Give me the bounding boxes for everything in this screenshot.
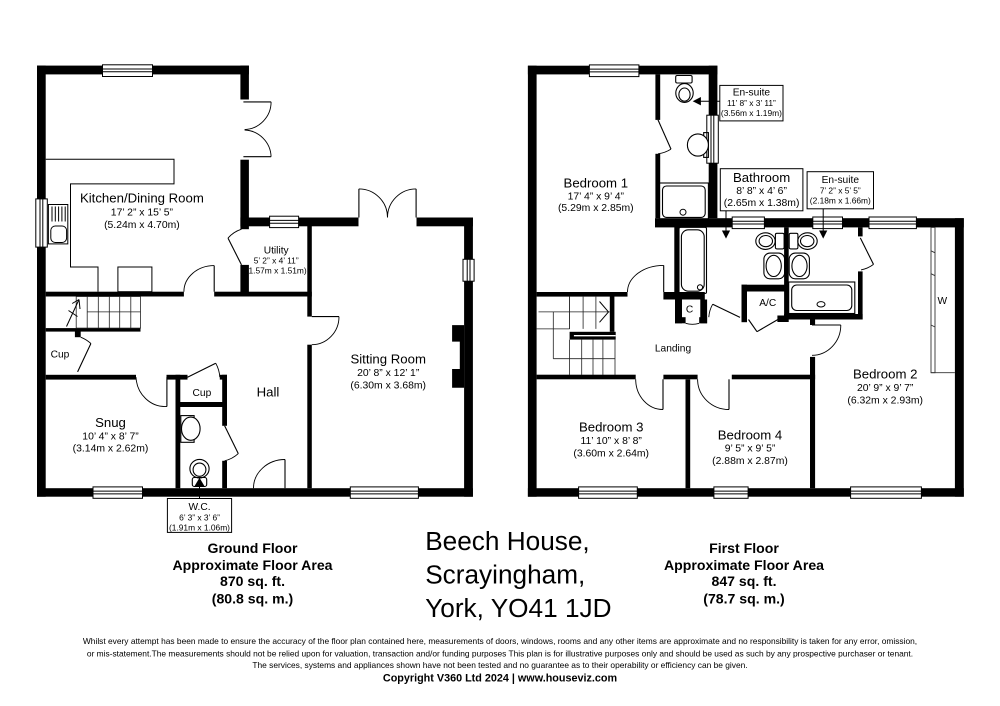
svg-text:Approximate Floor Area: Approximate Floor Area (664, 557, 824, 573)
svg-text:W.C.: W.C. (188, 502, 210, 513)
svg-text:Approximate Floor Area: Approximate Floor Area (172, 557, 332, 573)
svg-text:(80.8 sq. m.): (80.8 sq. m.) (212, 590, 293, 606)
svg-text:10’ 4” x 8’ 7”: 10’ 4” x 8’ 7” (82, 432, 139, 443)
svg-text:(1.91m x 1.06m): (1.91m x 1.06m) (169, 522, 230, 532)
svg-text:En-suite: En-suite (822, 175, 860, 186)
svg-text:(1.57m x 1.51m): (1.57m x 1.51m) (246, 266, 307, 276)
svg-text:(5.29m x 2.85m): (5.29m x 2.85m) (558, 203, 634, 214)
svg-text:8’ 8” x 4’ 6”: 8’ 8” x 4’ 6” (736, 186, 787, 197)
svg-text:9’ 5” x 9’ 5”: 9’ 5” x 9’ 5” (725, 444, 776, 455)
svg-text:(2.18m x 1.66m): (2.18m x 1.66m) (810, 196, 871, 206)
svg-text:Bedroom 4: Bedroom 4 (718, 428, 783, 443)
svg-text:The services, systems and appl: The services, systems and appliances sho… (252, 660, 747, 670)
svg-text:5’ 2” x 4’ 11”: 5’ 2” x 4’ 11” (254, 255, 299, 265)
svg-text:C: C (686, 305, 693, 316)
svg-text:Bathroom: Bathroom (733, 170, 790, 185)
svg-text:(6.32m x 2.93m): (6.32m x 2.93m) (847, 395, 923, 406)
svg-text:En-suite: En-suite (733, 88, 771, 99)
svg-text:Copyright V360 Ltd 2024 | www.: Copyright V360 Ltd 2024 | www.houseviz.c… (383, 672, 617, 684)
svg-text:(3.56m x 1.19m): (3.56m x 1.19m) (721, 108, 782, 118)
svg-text:or mis-statement.The measureme: or mis-statement.The measurements should… (87, 649, 913, 659)
svg-text:Bedroom 1: Bedroom 1 (564, 175, 629, 190)
svg-text:Bedroom 2: Bedroom 2 (853, 367, 918, 382)
svg-text:Cup: Cup (51, 350, 70, 361)
svg-text:Bedroom 3: Bedroom 3 (579, 420, 644, 435)
svg-text:Whilst every attempt has been: Whilst every attempt has been made to en… (83, 636, 917, 646)
svg-text:(3.60m x 2.64m): (3.60m x 2.64m) (573, 449, 649, 460)
svg-text:Landing: Landing (655, 344, 692, 355)
svg-text:Kitchen/Dining Room: Kitchen/Dining Room (80, 191, 204, 206)
svg-text:20’ 8” x 12’ 1”: 20’ 8” x 12’ 1” (357, 368, 420, 379)
svg-text:York, YO41 1JD: York, YO41 1JD (425, 593, 611, 623)
svg-text:(5.24m x 4.70m): (5.24m x 4.70m) (104, 220, 180, 231)
svg-text:Snug: Snug (95, 415, 126, 430)
svg-text:17’ 4” x 9’ 4”: 17’ 4” x 9’ 4” (568, 191, 625, 202)
svg-text:Sitting Room: Sitting Room (350, 351, 426, 366)
svg-text:First Floor: First Floor (709, 540, 779, 556)
svg-text:Scrayingham,: Scrayingham, (425, 560, 585, 590)
svg-text:W: W (937, 296, 947, 307)
svg-text:6’ 3” x 3’ 6”: 6’ 3” x 3’ 6” (179, 513, 220, 523)
svg-text:(78.7 sq. m.): (78.7 sq. m.) (703, 590, 784, 606)
svg-text:(2.88m x 2.87m): (2.88m x 2.87m) (712, 456, 788, 467)
svg-text:Hall: Hall (257, 385, 280, 400)
svg-text:847 sq. ft.: 847 sq. ft. (711, 573, 776, 589)
svg-text:(2.65m x 1.38m): (2.65m x 1.38m) (724, 198, 800, 209)
svg-text:Beech House,: Beech House, (425, 526, 590, 556)
svg-text:Ground Floor: Ground Floor (207, 540, 298, 556)
svg-text:17’ 2” x 15’ 5”: 17’ 2” x 15’ 5” (111, 207, 174, 218)
svg-text:11’ 8” x 3’ 11”: 11’ 8” x 3’ 11” (727, 98, 776, 108)
svg-text:(6.30m x 3.68m): (6.30m x 3.68m) (350, 380, 426, 391)
svg-text:11’ 10” x 8’ 8”: 11’ 10” x 8’ 8” (580, 436, 642, 447)
svg-text:(3.14m x 2.62m): (3.14m x 2.62m) (73, 444, 149, 455)
svg-text:870 sq. ft.: 870 sq. ft. (220, 573, 285, 589)
svg-text:A/C: A/C (759, 298, 776, 309)
svg-text:20’ 9” x 9’ 7”: 20’ 9” x 9’ 7” (857, 383, 914, 394)
svg-text:7’ 2” x 5’ 5”: 7’ 2” x 5’ 5” (820, 186, 861, 196)
svg-text:Cup: Cup (193, 388, 212, 399)
